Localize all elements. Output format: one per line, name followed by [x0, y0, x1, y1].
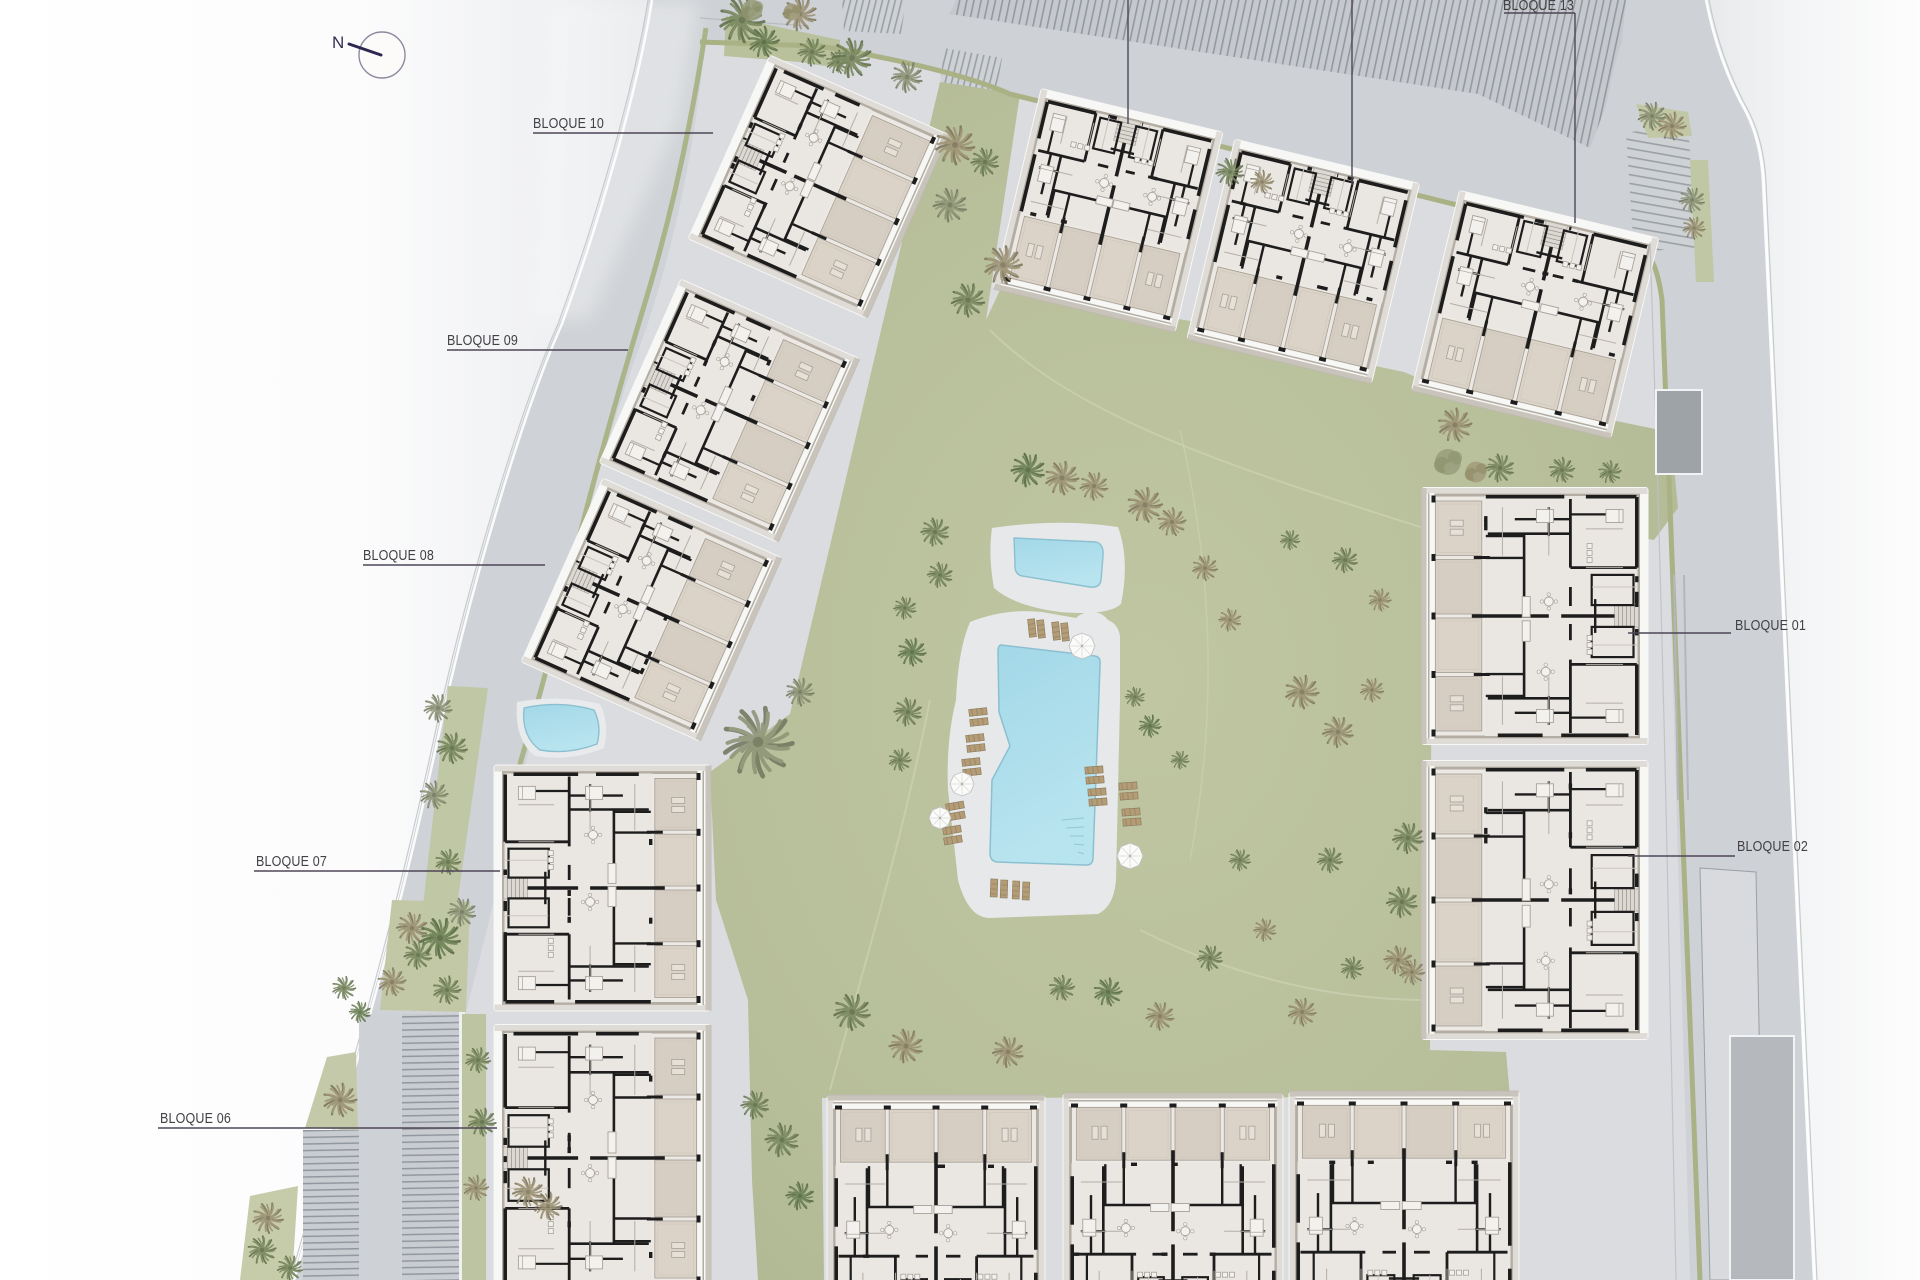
svg-text:BLOQUE 06: BLOQUE 06 [160, 1110, 231, 1127]
svg-text:BLOQUE 13: BLOQUE 13 [1503, 0, 1574, 14]
svg-text:BLOQUE 02: BLOQUE 02 [1737, 838, 1808, 855]
svg-text:BLOQUE 07: BLOQUE 07 [256, 853, 327, 870]
svg-text:BLOQUE 10: BLOQUE 10 [533, 115, 604, 132]
svg-text:N: N [332, 33, 345, 52]
svg-text:BLOQUE 08: BLOQUE 08 [363, 547, 434, 564]
svg-text:BLOQUE 09: BLOQUE 09 [447, 332, 518, 349]
svg-text:BLOQUE 01: BLOQUE 01 [1735, 617, 1806, 634]
